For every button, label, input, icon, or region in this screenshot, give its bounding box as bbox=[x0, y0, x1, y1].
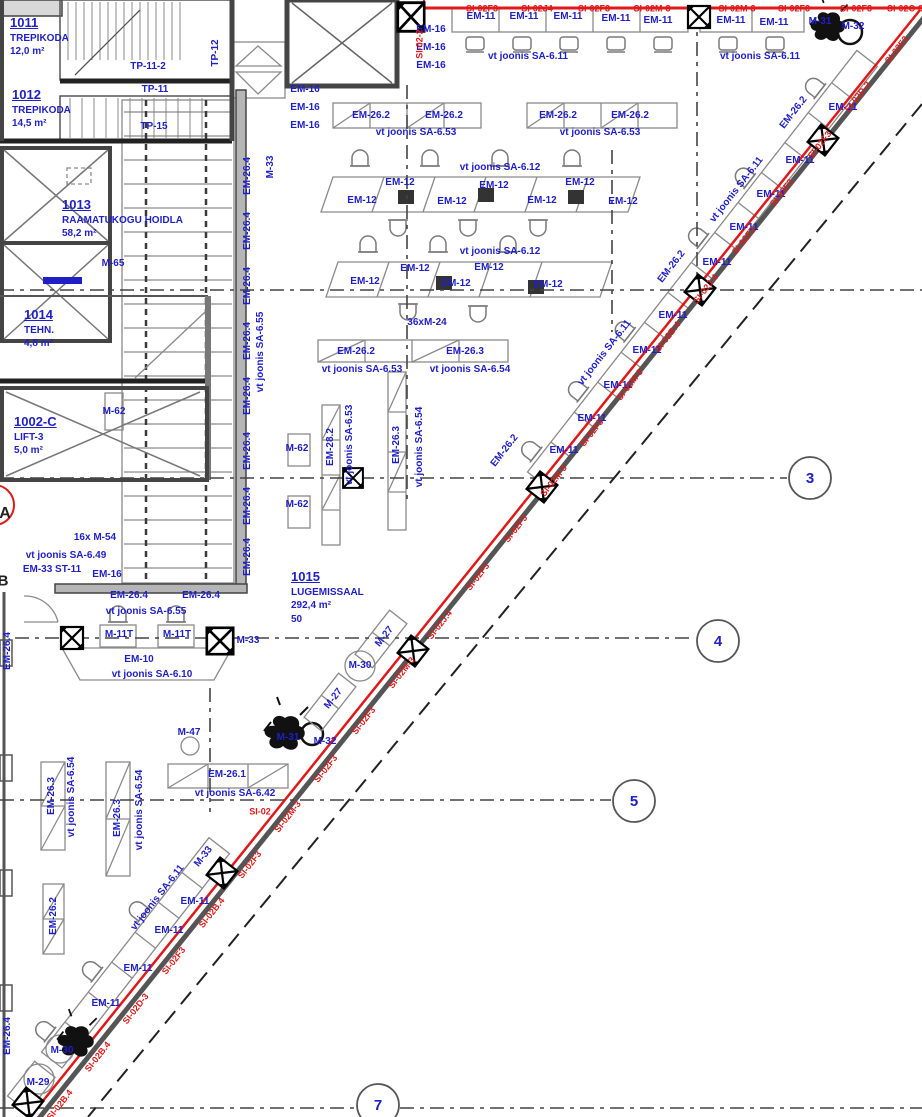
plan-label: vt joonis SA-6.12 bbox=[460, 163, 541, 173]
plan-label: EM-26.3 bbox=[392, 426, 402, 464]
plan-label: EM-12 bbox=[608, 197, 637, 207]
room-detail: 58,2 m² bbox=[62, 228, 183, 240]
plan-label: vt joonis SA-6.11 bbox=[488, 52, 568, 62]
plan-label: TP-11-2 bbox=[130, 62, 166, 72]
plan-label: M-62 bbox=[286, 500, 309, 510]
grid-bubble-3: 3 bbox=[789, 457, 831, 499]
plan-label: EM-11 bbox=[510, 12, 539, 22]
plan-label: vt joonis SA-6.12 bbox=[460, 247, 541, 257]
plan-label: EM-11 bbox=[602, 14, 631, 24]
plan-label: 16x M-54 bbox=[74, 533, 116, 543]
room-detail: TEHN. bbox=[24, 325, 54, 337]
plan-label: EM-11 bbox=[554, 12, 583, 22]
plan-label: EM-26.3 bbox=[446, 347, 484, 357]
room-number: 1012 bbox=[12, 88, 71, 103]
plan-label: EM-26.4 bbox=[110, 591, 148, 601]
plan-label: M-47 bbox=[178, 728, 201, 738]
room-detail: 5,0 m² bbox=[14, 445, 57, 457]
grid-bubble-circles bbox=[357, 457, 831, 1117]
plan-label: M-30 bbox=[51, 1046, 74, 1056]
plan-label: EM-12 bbox=[565, 178, 594, 188]
plan-label: EM-26.4 bbox=[243, 487, 253, 525]
plan-label: EM-26.4 bbox=[243, 377, 253, 415]
plan-label: TP-11 bbox=[142, 85, 169, 95]
plan-label: M-62 bbox=[286, 444, 309, 454]
plan-label: EM-11 bbox=[644, 16, 673, 26]
plan-label: EM-16 bbox=[92, 570, 121, 580]
plan-label: EM-26.4 bbox=[243, 212, 253, 250]
plan-label: SI-02 bbox=[249, 808, 271, 817]
plan-label: EM-26.2 bbox=[49, 897, 59, 935]
plan-label: EM-26.4 bbox=[3, 632, 13, 670]
room-detail: TREPIKODA bbox=[12, 105, 71, 117]
grid-bubble-4: 4 bbox=[697, 620, 739, 662]
plan-label: M-31 bbox=[277, 733, 300, 743]
plan-label: vt joonis SA-6.11 bbox=[720, 52, 800, 62]
plan-label: EM-26.2 bbox=[337, 347, 375, 357]
plan-label: M-62 bbox=[103, 407, 126, 417]
room-detail: 292,4 m² bbox=[291, 600, 364, 612]
plan-label: vt joonis SA-6.54 bbox=[415, 407, 425, 488]
room-info-1011: 1011TREPIKODA12,0 m² bbox=[10, 16, 69, 58]
plan-label: EM-12 bbox=[527, 196, 556, 206]
room-info-1015: 1015LUGEMISSAAL292,4 m²50 bbox=[291, 570, 364, 625]
structural-columns bbox=[13, 3, 839, 1117]
plan-label: EM-16 bbox=[290, 103, 319, 113]
plan-label: M-30 bbox=[349, 661, 372, 671]
plan-label: M-29 bbox=[27, 1078, 50, 1088]
plan-label: EM-12 bbox=[437, 197, 466, 207]
room-detail: TREPIKODA bbox=[10, 33, 69, 45]
plan-label: EM-26.1 bbox=[208, 770, 246, 780]
room-info-1002-C: 1002-CLIFT-35,0 m² bbox=[14, 415, 57, 457]
plan-label: SI-02F3 bbox=[466, 5, 498, 14]
room-detail: 4,8 m² bbox=[24, 338, 54, 350]
plan-label: EM-26.4 bbox=[243, 267, 253, 305]
plan-label: EM-26.4 bbox=[243, 157, 253, 195]
plan-label: vt joonis SA-6.53 bbox=[345, 405, 355, 486]
plan-label: EM-16 bbox=[416, 61, 445, 71]
plan-label: EM-26.4 bbox=[243, 432, 253, 470]
plan-label: M-32 bbox=[314, 737, 337, 747]
plan-label: vt joonis SA-6.54 bbox=[67, 757, 77, 838]
plan-label: EM-26.4 bbox=[182, 591, 220, 601]
plan-label: SI-02F3 bbox=[578, 5, 610, 14]
room-detail: LUGEMISSAAL bbox=[291, 587, 364, 599]
plan-label: EM-26.4 bbox=[3, 1017, 13, 1055]
plan-label: vt joonis SA-6.10 bbox=[112, 670, 193, 680]
plan-label: EM-33 ST-11 bbox=[23, 565, 81, 575]
plan-label: EM-12 bbox=[400, 264, 429, 274]
plan-label: EM-12 bbox=[474, 263, 503, 273]
plan-label: vt joonis SA-6.55 bbox=[256, 312, 266, 393]
plan-label: TP-15 bbox=[140, 122, 167, 132]
plan-label: SI-02M-3 bbox=[633, 5, 670, 14]
plan-label: 36xM-24 bbox=[407, 318, 446, 328]
plan-label: EM-28.2 bbox=[326, 428, 336, 466]
plan-label: vt joonis SA-6.53 bbox=[560, 128, 641, 138]
plan-label: TP-12 bbox=[211, 39, 221, 66]
plan-label: EM-26.2 bbox=[425, 111, 463, 121]
plan-label: SI-02-2 bbox=[416, 29, 425, 59]
plan-label: vt joonis SA-6.42 bbox=[195, 789, 276, 799]
plan-label: EM-11 bbox=[760, 18, 789, 28]
plan-label: EM-16 bbox=[290, 85, 319, 95]
room-info-1012: 1012TREPIKODA14,5 m² bbox=[12, 88, 71, 130]
room-detail: 14,5 m² bbox=[12, 118, 71, 130]
room-number: 1014 bbox=[24, 308, 54, 323]
plan-label: SI-02M-3 bbox=[718, 5, 755, 14]
plan-label: EM-12 bbox=[347, 196, 376, 206]
plan-label: vt joonis SA-6.54 bbox=[135, 770, 145, 851]
room-number: 1015 bbox=[291, 570, 364, 585]
plan-label: A bbox=[0, 506, 11, 522]
plan-label: EM-11 bbox=[703, 258, 732, 268]
room-detail: 50 bbox=[291, 614, 364, 626]
plan-label: M-11T bbox=[105, 630, 133, 640]
room-number: 1002-C bbox=[14, 415, 57, 430]
plan-label: EM-11 bbox=[155, 926, 184, 936]
floor-plan-canvas: TP-11-2TP-11TP-15TP-12M-65M-62M-62M-62M-… bbox=[0, 0, 922, 1117]
plan-label: EM-11 bbox=[124, 964, 153, 974]
plan-label: vt joonis SA-6.55 bbox=[106, 607, 187, 617]
plan-label: EM-11 bbox=[467, 12, 496, 22]
plan-label: SI-02C-3 bbox=[887, 5, 922, 14]
plan-label: EM-12 bbox=[441, 279, 470, 289]
plan-label: EM-11 bbox=[181, 897, 210, 907]
plan-label: EM-12 bbox=[350, 277, 379, 287]
plan-label: M-33 bbox=[237, 636, 260, 646]
plan-label: EM-16 bbox=[290, 121, 319, 131]
plan-label: vt joonis SA-6.54 bbox=[430, 365, 511, 375]
plan-label: EM-11 bbox=[717, 16, 746, 26]
room-detail: LIFT-3 bbox=[14, 432, 57, 444]
pen-scribbles bbox=[57, 0, 847, 1057]
plan-label: EM-26.4 bbox=[243, 538, 253, 576]
room-info-1014: 1014TEHN.4,8 m² bbox=[24, 308, 54, 350]
plan-label: B bbox=[0, 574, 8, 589]
plan-label: SI-02J4 bbox=[521, 5, 553, 14]
plan-label: EM-12 bbox=[385, 178, 414, 188]
plan-label: vt joonis SA-6.53 bbox=[322, 365, 403, 375]
plan-label: EM-26.4 bbox=[243, 322, 253, 360]
plan-label: EM-12 bbox=[479, 181, 508, 191]
plan-label: M-33 bbox=[266, 156, 276, 179]
grid-bubble-5: 5 bbox=[613, 780, 655, 822]
plan-label: M-65 bbox=[102, 259, 125, 269]
plan-label: EM-11 bbox=[550, 446, 579, 456]
room-detail: RAAMATUKOGU HOIDLA bbox=[62, 215, 183, 227]
plan-label: EM-26.3 bbox=[47, 777, 57, 815]
room-number: 1013 bbox=[62, 198, 183, 213]
room-info-1013: 1013RAAMATUKOGU HOIDLA58,2 m² bbox=[62, 198, 183, 240]
plan-label: vt joonis SA-6.53 bbox=[376, 128, 457, 138]
room-detail: 12,0 m² bbox=[10, 46, 69, 58]
plan-label: SI-02F3 bbox=[778, 5, 810, 14]
plan-label: EM-10 bbox=[124, 655, 153, 665]
plan-label: EM-26.2 bbox=[539, 111, 577, 121]
plan-label: EM-26.3 bbox=[113, 799, 123, 837]
plan-label: EM-26.2 bbox=[352, 111, 390, 121]
plan-label: vt joonis SA-6.49 bbox=[26, 551, 107, 561]
plan-label: M-11T bbox=[163, 630, 191, 640]
room-number: 1011 bbox=[10, 16, 69, 31]
plan-label: EM-11 bbox=[92, 999, 121, 1009]
plan-label: EM-12 bbox=[533, 280, 562, 290]
plan-label: EM-26.2 bbox=[611, 111, 649, 121]
plan-label: M-31 bbox=[809, 17, 832, 27]
plan-label: M-32 bbox=[842, 22, 865, 32]
plan-label: SI-02F3 bbox=[840, 5, 872, 14]
